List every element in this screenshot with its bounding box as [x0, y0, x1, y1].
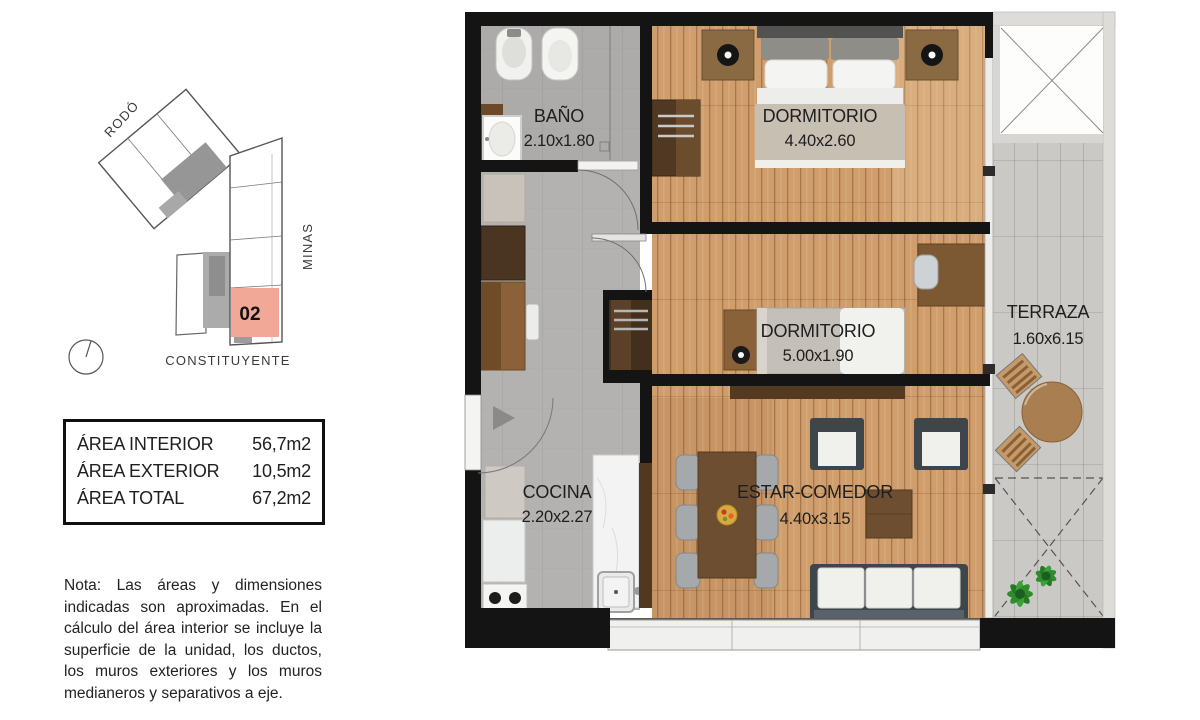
neighbour-building-small [176, 253, 206, 335]
unit-strip-building: 02 [230, 138, 282, 345]
area-value: 56,7m2 [252, 431, 311, 458]
area-label: ÁREA TOTAL [77, 485, 184, 512]
glass-wall [985, 54, 993, 618]
area-row-total: ÁREA TOTAL 67,2m2 [77, 485, 311, 512]
street-label-minas: MINAS [300, 223, 315, 270]
terrace-table [1022, 382, 1082, 442]
area-value: 67,2m2 [252, 485, 311, 512]
area-label: ÁREA EXTERIOR [77, 458, 219, 485]
street-label-constituyente: CONSTITUYENTE [165, 353, 290, 368]
armchair [914, 418, 968, 470]
window-band [608, 618, 980, 650]
label-dorm2: DORMITORIO [761, 321, 876, 341]
label-estar: ESTAR-COMEDOR [737, 482, 893, 502]
floor-plan: BAÑO 2.10x1.80 DORMITORIO 4.40x2.60 DORM… [462, 8, 1122, 658]
parapet-top [993, 12, 1115, 26]
dining-chair [676, 553, 700, 588]
area-value: 10,5m2 [252, 458, 311, 485]
bath-sink [483, 116, 521, 162]
tv-cabinet [730, 386, 905, 399]
dims-dorm1: 4.40x2.60 [785, 132, 856, 150]
dims-estar: 4.40x3.15 [780, 510, 851, 528]
dining-chair [754, 553, 778, 588]
unit-number: 02 [239, 304, 260, 325]
location-map: RODÓ MINAS CONSTITUYENTE 02 [40, 70, 340, 390]
laundry-unit [483, 174, 525, 222]
label-terraza: TERRAZA [1007, 302, 1090, 322]
desk-chair [914, 255, 938, 289]
hall-cabinet-dark [481, 226, 525, 280]
kitchen-island [593, 455, 642, 612]
dims-terraza: 1.60x6.15 [1013, 330, 1084, 348]
closet-dorm2 [609, 300, 652, 370]
dining-chair [754, 505, 778, 540]
nightstand [702, 30, 754, 80]
floorplan-sheet: RODÓ MINAS CONSTITUYENTE 02 [0, 0, 1200, 720]
mullion [983, 166, 995, 176]
wardrobe-dorm1 [652, 100, 700, 176]
label-dorm1: DORMITORIO [763, 106, 878, 126]
note-text: Nota: Las áreas y dimensiones indicadas … [64, 575, 322, 704]
parapet-right [1103, 12, 1115, 648]
armchair [810, 418, 864, 470]
bidet [496, 28, 532, 80]
kitchen-counter [483, 520, 525, 582]
area-row-interior: ÁREA INTERIOR 56,7m2 [77, 431, 311, 458]
fridge [485, 466, 525, 518]
nightstand [724, 310, 758, 370]
tall-cabinet [639, 463, 652, 608]
compass-icon [69, 340, 103, 374]
label-bano: BAÑO [534, 105, 584, 126]
hall-cabinet-wood [481, 282, 525, 370]
sink-drain [614, 590, 618, 594]
dims-bano: 2.10x1.80 [524, 132, 595, 150]
dining-chair [676, 455, 700, 490]
dims-cocina: 2.20x2.27 [522, 508, 593, 526]
mullion [983, 364, 995, 374]
dims-dorm2: 5.00x1.90 [783, 347, 854, 365]
desk [914, 244, 985, 306]
label-cocina: COCINA [523, 482, 592, 502]
nightstand [906, 30, 958, 80]
sofa [810, 564, 968, 624]
toilet [542, 28, 578, 80]
dining-set [676, 452, 778, 588]
centerpiece [717, 505, 737, 525]
dining-chair [676, 505, 700, 540]
area-table: ÁREA INTERIOR 56,7m2 ÁREA EXTERIOR 10,5m… [63, 419, 325, 525]
mullion [983, 484, 995, 494]
void-x [993, 26, 1103, 143]
area-row-exterior: ÁREA EXTERIOR 10,5m2 [77, 458, 311, 485]
area-label: ÁREA INTERIOR [77, 431, 213, 458]
door-leaf [526, 304, 539, 340]
core-block-inner [209, 256, 225, 296]
